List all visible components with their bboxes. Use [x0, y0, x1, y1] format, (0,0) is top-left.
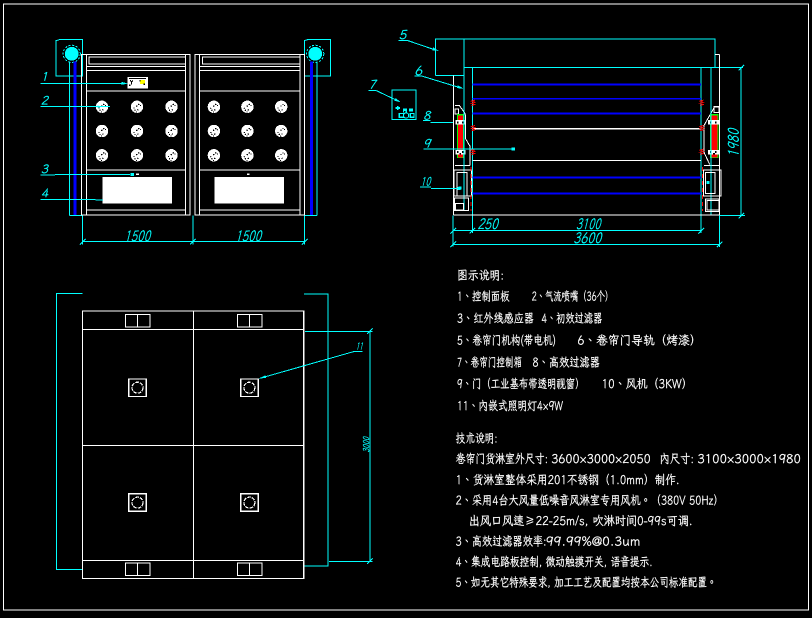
svg-text:7、卷帘门控制箱: 7、卷帘门控制箱 [457, 354, 522, 371]
svg-text:2、气流喷嘴（36个）: 2、气流喷嘴（36个） [532, 288, 614, 305]
svg-text:出风口风速≥22-25m/s, 吹淋时间0-99s可调.: 出风口风速≥22-25m/s, 吹淋时间0-99s可调. [469, 512, 693, 529]
svg-text:9、门（工业基布带透明视窗）: 9、门（工业基布带透明视窗） [457, 375, 585, 392]
svg-text:10、风机（3KW）: 10、风机（3KW） [602, 375, 693, 392]
svg-text:4、集成电路板控制, 微动触摸开关, 语音提示.: 4、集成电路板控制, 微动触摸开关, 语音提示. [456, 553, 653, 570]
svg-text:3600×3000×2050: 3600×3000×2050 [551, 450, 651, 467]
svg-text:3、高效过滤器效率:: 3、高效过滤器效率: [456, 533, 547, 550]
svg-text:3600: 3600 [572, 229, 605, 248]
svg-text:卷帘门货淋室外尺寸:: 卷帘门货淋室外尺寸: [456, 450, 548, 467]
svg-text:3000: 3000 [361, 435, 372, 453]
svg-text:内尺寸:: 内尺寸: [660, 450, 695, 467]
svg-text:4、初效过滤器: 4、初效过滤器 [541, 310, 602, 327]
svg-text:11、内嵌式照明灯4×9W: 11、内嵌式照明灯4×9W [457, 397, 563, 414]
svg-text:2、采用4台大风量低噪音风淋室专用风机。（380V 50Hz: 2、采用4台大风量低噪音风淋室专用风机。（380V 50Hz） [456, 492, 724, 509]
svg-text:3100×3000×1980: 3100×3000×1980 [697, 450, 801, 467]
svg-text:1500: 1500 [234, 227, 265, 246]
svg-text:1、货淋室整体采用201不锈钢（1.0mm）制作.: 1、货淋室整体采用201不锈钢（1.0mm）制作. [456, 471, 680, 488]
svg-text:99.99%@0.3um: 99.99%@0.3um [546, 533, 641, 550]
svg-text:3、红外线感应器: 3、红外线感应器 [457, 310, 534, 327]
svg-text:技术说明:: 技术说明: [456, 430, 498, 447]
svg-text:8、高效过滤器: 8、高效过滤器 [533, 354, 601, 371]
svg-text:5、卷帘门机构(带电机): 5、卷帘门机构(带电机) [457, 332, 556, 349]
svg-text:5、如无其它特殊要求, 加工工艺及配置均按本公司标准配置。: 5、如无其它特殊要求, 加工工艺及配置均按本公司标准配置。 [456, 573, 717, 590]
svg-text:1980: 1980 [725, 125, 744, 158]
svg-text:1500: 1500 [123, 227, 154, 246]
svg-text:图示说明:: 图示说明: [457, 266, 504, 283]
svg-text:1、控制面板: 1、控制面板 [457, 288, 510, 305]
svg-text:6、卷帘门导轨（烤漆）: 6、卷帘门导轨（烤漆） [577, 332, 701, 349]
